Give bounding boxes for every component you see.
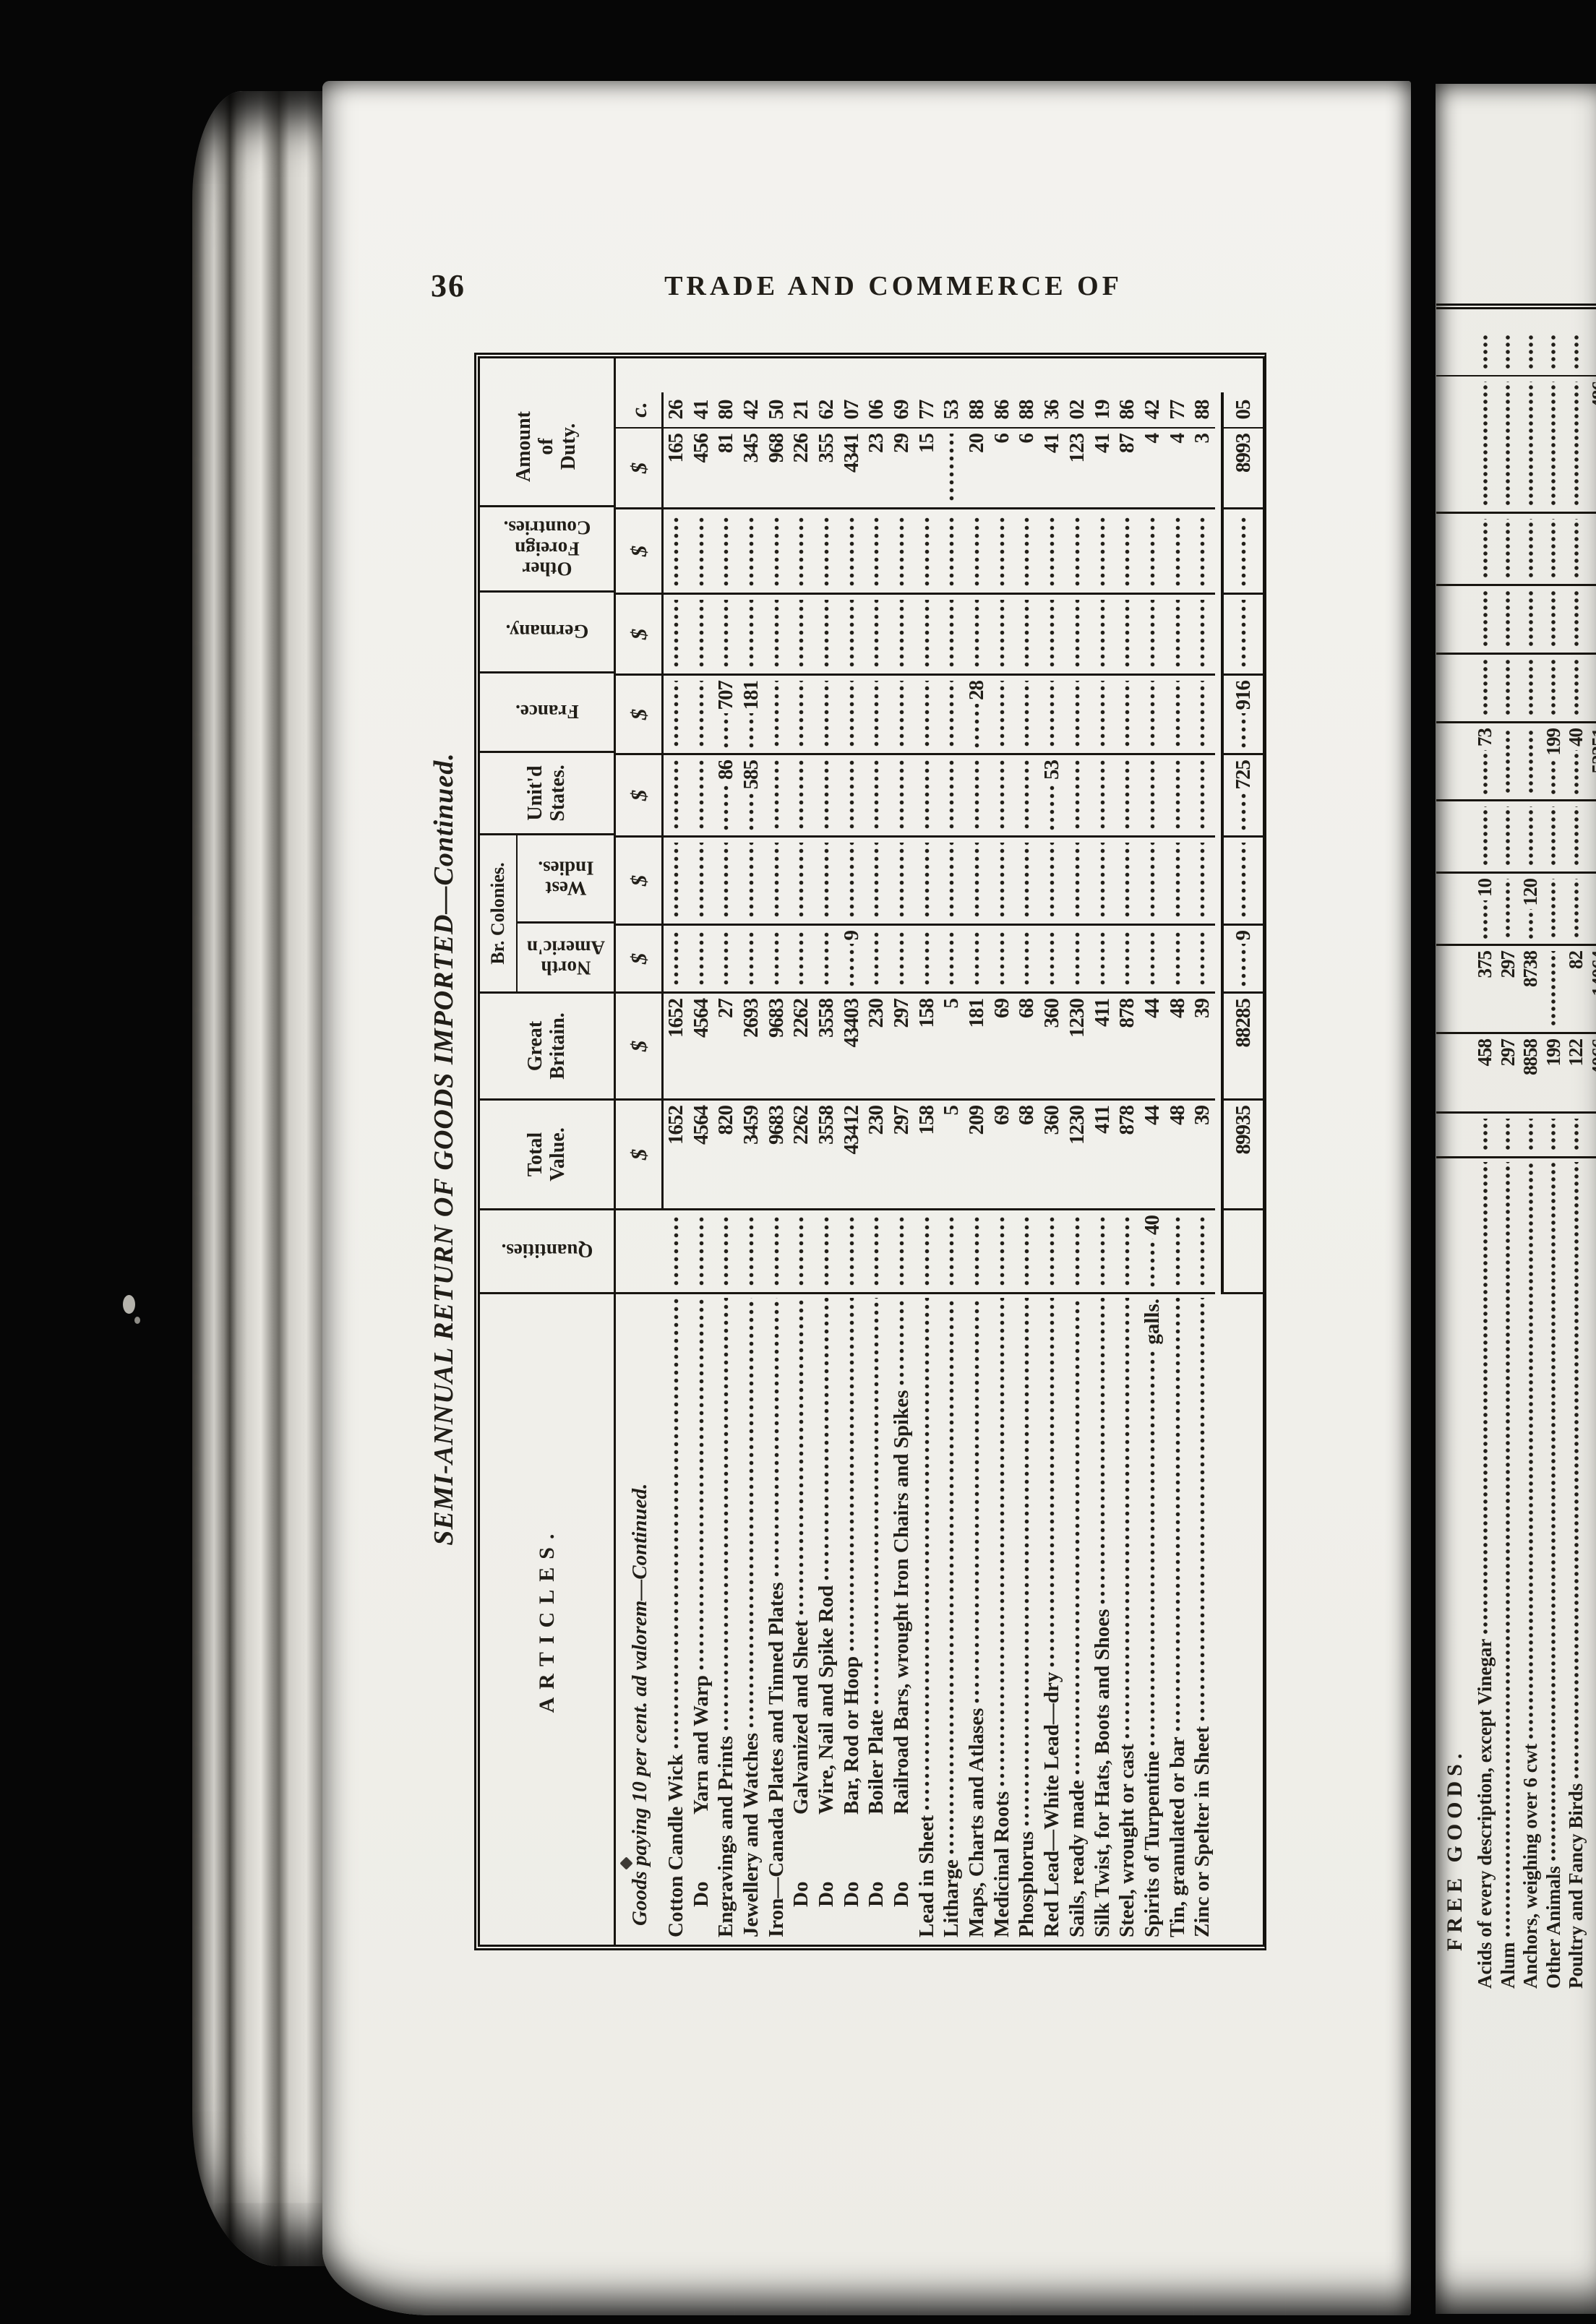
- cell-q: [940, 1210, 965, 1294]
- cell-value: 9683: [765, 1101, 789, 1145]
- dotted-leader: [898, 600, 906, 668]
- col-header-other-foreign: Other Foreign Countries.: [480, 507, 614, 593]
- cell-dd: [1497, 376, 1520, 514]
- cell-us: [1165, 755, 1190, 838]
- cell-dd: 456: [689, 429, 714, 509]
- dotted-leader: [1504, 660, 1512, 716]
- cell-value: 42: [1141, 400, 1164, 420]
- cell-value: 820: [714, 1101, 738, 1135]
- col-header-great-britain: Great Britain.: [480, 994, 614, 1101]
- cell-na: [814, 926, 839, 994]
- cell-tv: 3459: [739, 1101, 764, 1210]
- dotted-leader: [1123, 515, 1132, 588]
- cell-wi: [964, 838, 990, 926]
- cell-of: [1039, 509, 1065, 595]
- col-header-quantities: Quantities.: [480, 1210, 614, 1294]
- cell-value: 23: [864, 429, 888, 453]
- article-name: Steel, wrought or cast: [1115, 1744, 1139, 1945]
- dotted-leader: [1023, 515, 1031, 588]
- cell-na: 9: [839, 926, 864, 994]
- sliver-cell: [1436, 723, 1474, 801]
- dotted-leader: [1504, 879, 1512, 939]
- dotted-leader: [722, 843, 731, 918]
- quantity-unit: galls.: [1141, 1294, 1164, 1345]
- dotted-leader: [822, 600, 831, 668]
- dotted-leader: [822, 515, 831, 588]
- dotted-leader: [1481, 660, 1489, 716]
- main-page: 36 TRADE AND COMMERCE OF SEMI-ANNUAL RET…: [322, 81, 1411, 2315]
- cell-dd: 486: [1588, 376, 1596, 514]
- cell-us: [964, 755, 990, 838]
- cell-dc: [1519, 330, 1543, 376]
- dotted-leader: [1527, 1162, 1535, 1740]
- cell-value: 81: [714, 429, 738, 453]
- article-name-cell: [1588, 1158, 1596, 1993]
- cell-dc: 21: [789, 392, 814, 429]
- cell-wi: [940, 838, 965, 926]
- cell-dc: 53: [940, 392, 965, 429]
- dotted-leader: [1023, 843, 1031, 918]
- dotted-leader: [1481, 1162, 1489, 1635]
- cell-dc: [1474, 330, 1497, 376]
- cell-de: [664, 595, 689, 676]
- dotted-leader: [973, 600, 982, 668]
- sliver-cell: [1436, 330, 1474, 376]
- table-row: Engravings and Prints82027867078180: [713, 358, 739, 1945]
- total-row: 89935882859725916899305: [1221, 358, 1263, 1945]
- table-title: SEMI-ANNUAL RETURN OF GOODS IMPORTED—Con…: [418, 348, 470, 1950]
- col-header-france: France.: [480, 673, 614, 753]
- cell-value: 3: [1190, 429, 1214, 444]
- currency-cell: $: [616, 676, 664, 755]
- dotted-leader: [1098, 760, 1107, 830]
- cell-value: 69: [890, 400, 914, 420]
- cell-us: [1090, 755, 1115, 838]
- dotted-leader: [1198, 931, 1207, 986]
- cell-of: [1140, 509, 1165, 595]
- currency-cell: $: [616, 1101, 664, 1210]
- cell-de: [764, 595, 789, 676]
- cell-value: 41: [1040, 429, 1064, 453]
- cell-wi: [814, 838, 839, 926]
- currency-cell: $: [616, 595, 664, 676]
- dotted-leader: [922, 600, 931, 668]
- table-total-row: 89935882859725916899305: [1221, 358, 1263, 1945]
- dotted-leader: [1173, 843, 1182, 918]
- dotted-leader: [1098, 931, 1107, 986]
- cell-value: 8858: [1519, 1034, 1542, 1075]
- cell-value: 68: [1015, 994, 1039, 1018]
- cell-value: 89935: [1232, 1101, 1256, 1155]
- cell-gb: 14064: [1588, 946, 1596, 1034]
- free-goods-table-fragment: FREE GOODS. Acids of every description, …: [1436, 304, 1596, 1993]
- cell-na: 10: [1474, 874, 1497, 946]
- dotted-leader: [922, 1215, 931, 1287]
- cell-fr: [1565, 655, 1588, 723]
- article-name: Spirits of Turpentine: [1141, 1751, 1164, 1945]
- scanned-book-photo: { "page": { "number": "36", "running_tit…: [0, 0, 1596, 2324]
- dotted-leader: [1173, 760, 1182, 830]
- cell-gb: 2693: [739, 994, 764, 1101]
- article-name-cell: Alum: [1497, 1158, 1520, 1993]
- cell-gb: 4564: [689, 994, 714, 1101]
- cell-of: [914, 509, 940, 595]
- dotted-leader: [1527, 519, 1535, 579]
- article-do-label: Do: [789, 1815, 813, 1907]
- dotted-leader: [797, 1298, 806, 1617]
- article-name: Engravings and Prints: [714, 1736, 738, 1945]
- dotted-leader: [1572, 382, 1580, 507]
- free-goods-row: Alum297297: [1497, 309, 1520, 1993]
- cell-value: 43403: [840, 994, 864, 1048]
- cell-de: [990, 595, 1015, 676]
- cell-value: 27: [714, 994, 738, 1018]
- cell-tv: 360: [1039, 1101, 1065, 1210]
- dotted-leader: [847, 515, 856, 588]
- section-heading-cell: Goods paying 10 per cent. ad valorem—Con…: [616, 1294, 664, 1945]
- table-row: Litharge5553: [940, 358, 965, 1945]
- dotted-leader: [1148, 600, 1157, 668]
- cell-wi: [889, 838, 914, 926]
- dotted-leader: [1198, 1298, 1207, 1723]
- dotted-leader: [898, 515, 906, 588]
- cell-wi: [1474, 801, 1497, 874]
- cell-value: 29: [890, 429, 914, 453]
- cell-value: 6: [1015, 429, 1039, 444]
- dotted-leader: [948, 515, 956, 588]
- cell-value: 4341: [840, 429, 864, 473]
- dotted-leader: [1572, 1119, 1580, 1151]
- dotted-leader: [772, 760, 781, 830]
- dotted-leader: [997, 1298, 1006, 1788]
- dotted-leader: [1123, 681, 1132, 748]
- cell-of: [1165, 509, 1190, 595]
- cell-of: [739, 509, 764, 595]
- total-dd: 8993: [1221, 429, 1263, 509]
- dotted-leader: [847, 681, 856, 748]
- cell-dd: 226: [789, 429, 814, 509]
- article-name-cell: Acids of every description, except Vineg…: [1474, 1158, 1497, 1993]
- dotted-leader: [672, 1215, 680, 1287]
- dotted-leader: [872, 1215, 881, 1287]
- cell-of: [1565, 514, 1588, 586]
- cell-value: 486: [1588, 376, 1596, 409]
- dotted-leader: [797, 515, 806, 588]
- cell-na: [1140, 926, 1165, 994]
- dotted-leader: [672, 931, 680, 986]
- cell-value: 4066: [1588, 1034, 1596, 1075]
- cell-value: 69: [990, 994, 1014, 1018]
- cell-value: 52351: [1588, 723, 1596, 774]
- free-goods-row: Acids of every description, except Vineg…: [1474, 309, 1497, 1993]
- cell-value: 3459: [739, 1101, 763, 1145]
- cell-tv: 5: [940, 1101, 965, 1210]
- total-q: [1221, 1210, 1263, 1294]
- cell-tv: 122: [1565, 1034, 1588, 1114]
- cell-value: 209: [965, 1101, 989, 1135]
- cell-value: 878: [1115, 994, 1139, 1028]
- cell-us: 585: [739, 755, 764, 838]
- dotted-leader: [672, 1298, 680, 1750]
- cell-wi: [1115, 838, 1140, 926]
- cell-of: [764, 509, 789, 595]
- dotted-leader: [1148, 681, 1157, 748]
- dotted-leader: [822, 681, 831, 748]
- cell-fr: [764, 676, 789, 755]
- cell-wi: [1588, 801, 1596, 874]
- cell-na: [1543, 874, 1566, 946]
- cell-value: 2693: [739, 994, 763, 1038]
- cell-value: 5: [940, 994, 964, 1009]
- cell-na: [739, 926, 764, 994]
- dotted-leader: [672, 681, 680, 748]
- cell-value: 4564: [690, 1101, 713, 1145]
- currency-cell: $: [616, 926, 664, 994]
- cell-dc: 42: [739, 392, 764, 429]
- cell-dd: [1519, 376, 1543, 514]
- cell-value: 86: [990, 400, 1014, 420]
- cell-tv: 878: [1115, 1101, 1140, 1210]
- cell-wi: [839, 838, 864, 926]
- cell-fr: [914, 676, 940, 755]
- cell-value: 82: [1565, 946, 1587, 969]
- cell-q: [1588, 1114, 1596, 1158]
- col-header-total-value: Total Value.: [480, 1101, 614, 1210]
- dotted-leader: [1504, 806, 1512, 866]
- cell-fr: [1090, 676, 1115, 755]
- cell-dd: [1565, 376, 1588, 514]
- cell-dd: [1543, 376, 1566, 514]
- cell-fr: 28: [964, 676, 990, 755]
- cell-wi: [689, 838, 714, 926]
- cell-value: 44: [1141, 994, 1164, 1018]
- cell-value: 199: [1543, 1034, 1565, 1067]
- cell-tv: 4564: [689, 1101, 714, 1210]
- dotted-leader: [1073, 931, 1081, 986]
- cell-value: 1230: [1065, 1101, 1089, 1145]
- dotted-leader: [1572, 660, 1580, 716]
- dotted-leader: [1239, 600, 1248, 668]
- cell-dc: [1588, 330, 1596, 376]
- dotted-leader: [872, 1298, 881, 1706]
- dotted-leader: [1148, 760, 1157, 830]
- dotted-leader: [922, 843, 931, 918]
- cell-gb: 1652: [664, 994, 689, 1101]
- cell-of: [1497, 514, 1520, 586]
- cell-value: 15: [915, 429, 939, 453]
- cell-value: 39: [1190, 1101, 1214, 1125]
- dotted-leader: [922, 1298, 931, 1812]
- scan-speck: [123, 1295, 135, 1314]
- cell-us: [839, 755, 864, 838]
- cell-dd: 6: [1015, 429, 1040, 509]
- cell-dd: 6: [990, 429, 1015, 509]
- sliver-cell: [1436, 655, 1474, 723]
- cell-dc: 26: [664, 392, 689, 429]
- article-name-cell: Litharge: [940, 1294, 965, 1945]
- article-name: Cotton Candle Wick: [664, 1754, 688, 1945]
- total-na: 9: [1221, 926, 1263, 994]
- dotted-leader: [872, 931, 881, 986]
- currency-cell-quantities: [616, 1210, 664, 1294]
- cell-fr: [689, 676, 714, 755]
- dotted-leader: [1239, 515, 1248, 588]
- dotted-leader: [847, 944, 856, 989]
- cell-value: 36: [1040, 400, 1064, 420]
- dotted-leader: [1572, 519, 1580, 579]
- cell-na: [1015, 926, 1040, 994]
- cell-dd: 87: [1115, 429, 1140, 509]
- cell-value: 77: [1166, 400, 1190, 420]
- dotted-leader: [872, 760, 881, 830]
- cell-value: 297: [890, 994, 914, 1028]
- cell-dc: 77: [914, 392, 940, 429]
- cell-tv: 68: [1015, 1101, 1040, 1210]
- cell-gb: 878: [1115, 994, 1140, 1101]
- dotted-leader: [797, 931, 806, 986]
- cell-fr: [889, 676, 914, 755]
- cell-de: [1190, 595, 1215, 676]
- dotted-leader: [822, 760, 831, 830]
- table-row: Zinc or Spelter in Sheet3939388: [1190, 358, 1215, 1945]
- dotted-leader: [1173, 515, 1182, 588]
- dotted-leader: [772, 681, 781, 748]
- cell-de: [1140, 595, 1165, 676]
- dotted-leader: [1550, 951, 1558, 1027]
- article-name-cell: Engravings and Prints: [713, 1294, 739, 1945]
- cell-de: [1474, 586, 1497, 655]
- article-do-label: Do: [890, 1815, 914, 1907]
- dotted-leader: [898, 931, 906, 986]
- dotted-leader: [1550, 879, 1558, 939]
- cell-fr: [1543, 655, 1566, 723]
- free-goods-heading-cell: FREE GOODS.: [1436, 1158, 1474, 1993]
- table-row: Medicinal Roots6969686: [990, 358, 1015, 1945]
- table-row: Phosphorus6868688: [1015, 358, 1040, 1945]
- dotted-leader: [1550, 382, 1558, 507]
- cell-dd: 29: [889, 429, 914, 509]
- cell-value: 199: [1543, 723, 1565, 756]
- cell-de: [814, 595, 839, 676]
- cell-fr: [1588, 655, 1596, 723]
- dotted-leader: [1481, 591, 1489, 647]
- article-do-label: Do: [815, 1815, 838, 1907]
- cell-us: [864, 755, 890, 838]
- dotted-leader: [1550, 335, 1558, 370]
- cell-fr: [1165, 676, 1190, 755]
- dotted-leader: [1148, 515, 1157, 588]
- dotted-leader: [1148, 1239, 1157, 1288]
- article-name-cell: Silk Twist, for Hats, Boots and Shoes: [1090, 1294, 1115, 1945]
- article-name-cell: DoRailroad Bars, wrought Iron Chairs and…: [889, 1294, 914, 1945]
- dotted-leader: [822, 931, 831, 986]
- cell-value: 62: [815, 400, 838, 420]
- article-name-cell: Iron—Canada Plates and Tinned Plates: [764, 1294, 789, 1945]
- dotted-leader: [1527, 910, 1535, 941]
- dotted-leader: [772, 1215, 781, 1287]
- dotted-leader: [1198, 600, 1207, 668]
- cell-us: [1497, 723, 1520, 801]
- cell-na: [764, 926, 789, 994]
- cell-of: [864, 509, 890, 595]
- dotted-leader: [1504, 1119, 1512, 1151]
- dotted-leader: [1123, 931, 1132, 986]
- dotted-leader: [1527, 591, 1535, 647]
- dotted-leader: [747, 714, 755, 750]
- article-name: Litharge: [940, 1859, 964, 1945]
- cell-dc: 42: [1140, 392, 1165, 429]
- dotted-leader: [822, 1298, 831, 1582]
- cell-dd: 4: [1165, 429, 1190, 509]
- dotted-leader: [1504, 519, 1512, 579]
- dotted-leader: [922, 515, 931, 588]
- cell-us: [940, 755, 965, 838]
- dotted-leader: [1527, 1119, 1535, 1151]
- dotted-leader: [1073, 515, 1081, 588]
- cell-fr: [664, 676, 689, 755]
- dotted-leader: [1504, 591, 1512, 647]
- cell-wi: [1140, 838, 1165, 926]
- free-goods-row: 40661406452351486: [1588, 309, 1596, 1993]
- dotted-leader: [997, 600, 1006, 668]
- currency-cell-duty-dollar: $: [616, 429, 664, 509]
- goods-table: ARTICLES. Quantities. Total Value. Great…: [474, 353, 1266, 1950]
- dotted-leader: [1148, 1348, 1157, 1748]
- dotted-leader: [1048, 931, 1057, 986]
- dotted-leader: [672, 515, 680, 588]
- table-row: DoGalvanized and Sheet2262226222621: [789, 358, 814, 1945]
- cell-value: 165: [664, 429, 688, 463]
- cell-gb: 158: [914, 994, 940, 1101]
- cell-de: [940, 595, 965, 676]
- cell-dd: 41: [1039, 429, 1065, 509]
- dotted-leader: [672, 760, 680, 830]
- cell-fr: [864, 676, 890, 755]
- dotted-leader: [847, 843, 856, 918]
- cell-value: 80: [714, 400, 738, 420]
- dotted-leader: [1550, 806, 1558, 866]
- facing-page-sliver: FREE GOODS. Acids of every description, …: [1436, 84, 1596, 2314]
- cell-value: 73: [1474, 723, 1496, 746]
- article-name: Other Animals: [1543, 1866, 1565, 1993]
- cell-value: 230: [864, 1101, 888, 1135]
- sliver-cell: [1436, 376, 1474, 514]
- cell-value: 230: [864, 994, 888, 1028]
- cell-value: 1230: [1065, 994, 1089, 1038]
- free-goods-row: Anchors, weighing over 6 cwt88588738120: [1519, 309, 1543, 1993]
- dotted-leader: [973, 1215, 982, 1287]
- cell-of: [1090, 509, 1115, 595]
- cell-value: 456: [690, 429, 713, 463]
- article-name: Phosphorus: [1015, 1831, 1039, 1945]
- dotted-leader: [1572, 1162, 1580, 1780]
- dotted-leader: [1048, 600, 1057, 668]
- cell-fr: [1474, 655, 1497, 723]
- article-name: Red Lead—White Lead—dry: [1040, 1672, 1064, 1945]
- dotted-leader: [697, 600, 705, 668]
- dotted-leader: [772, 1298, 781, 1579]
- cell-na: [940, 926, 965, 994]
- dotted-leader: [747, 793, 755, 832]
- cell-value: 44: [1141, 1101, 1164, 1125]
- cell-na: [864, 926, 890, 994]
- article-name-cell: Tin, granulated or bar: [1165, 1294, 1190, 1945]
- running-title: TRADE AND COMMERCE OF: [539, 270, 1248, 302]
- article-name-cell: Sails, ready made: [1065, 1294, 1090, 1945]
- dotted-leader: [1123, 1298, 1132, 1740]
- dotted-leader: [1239, 843, 1248, 918]
- cell-us: [664, 755, 689, 838]
